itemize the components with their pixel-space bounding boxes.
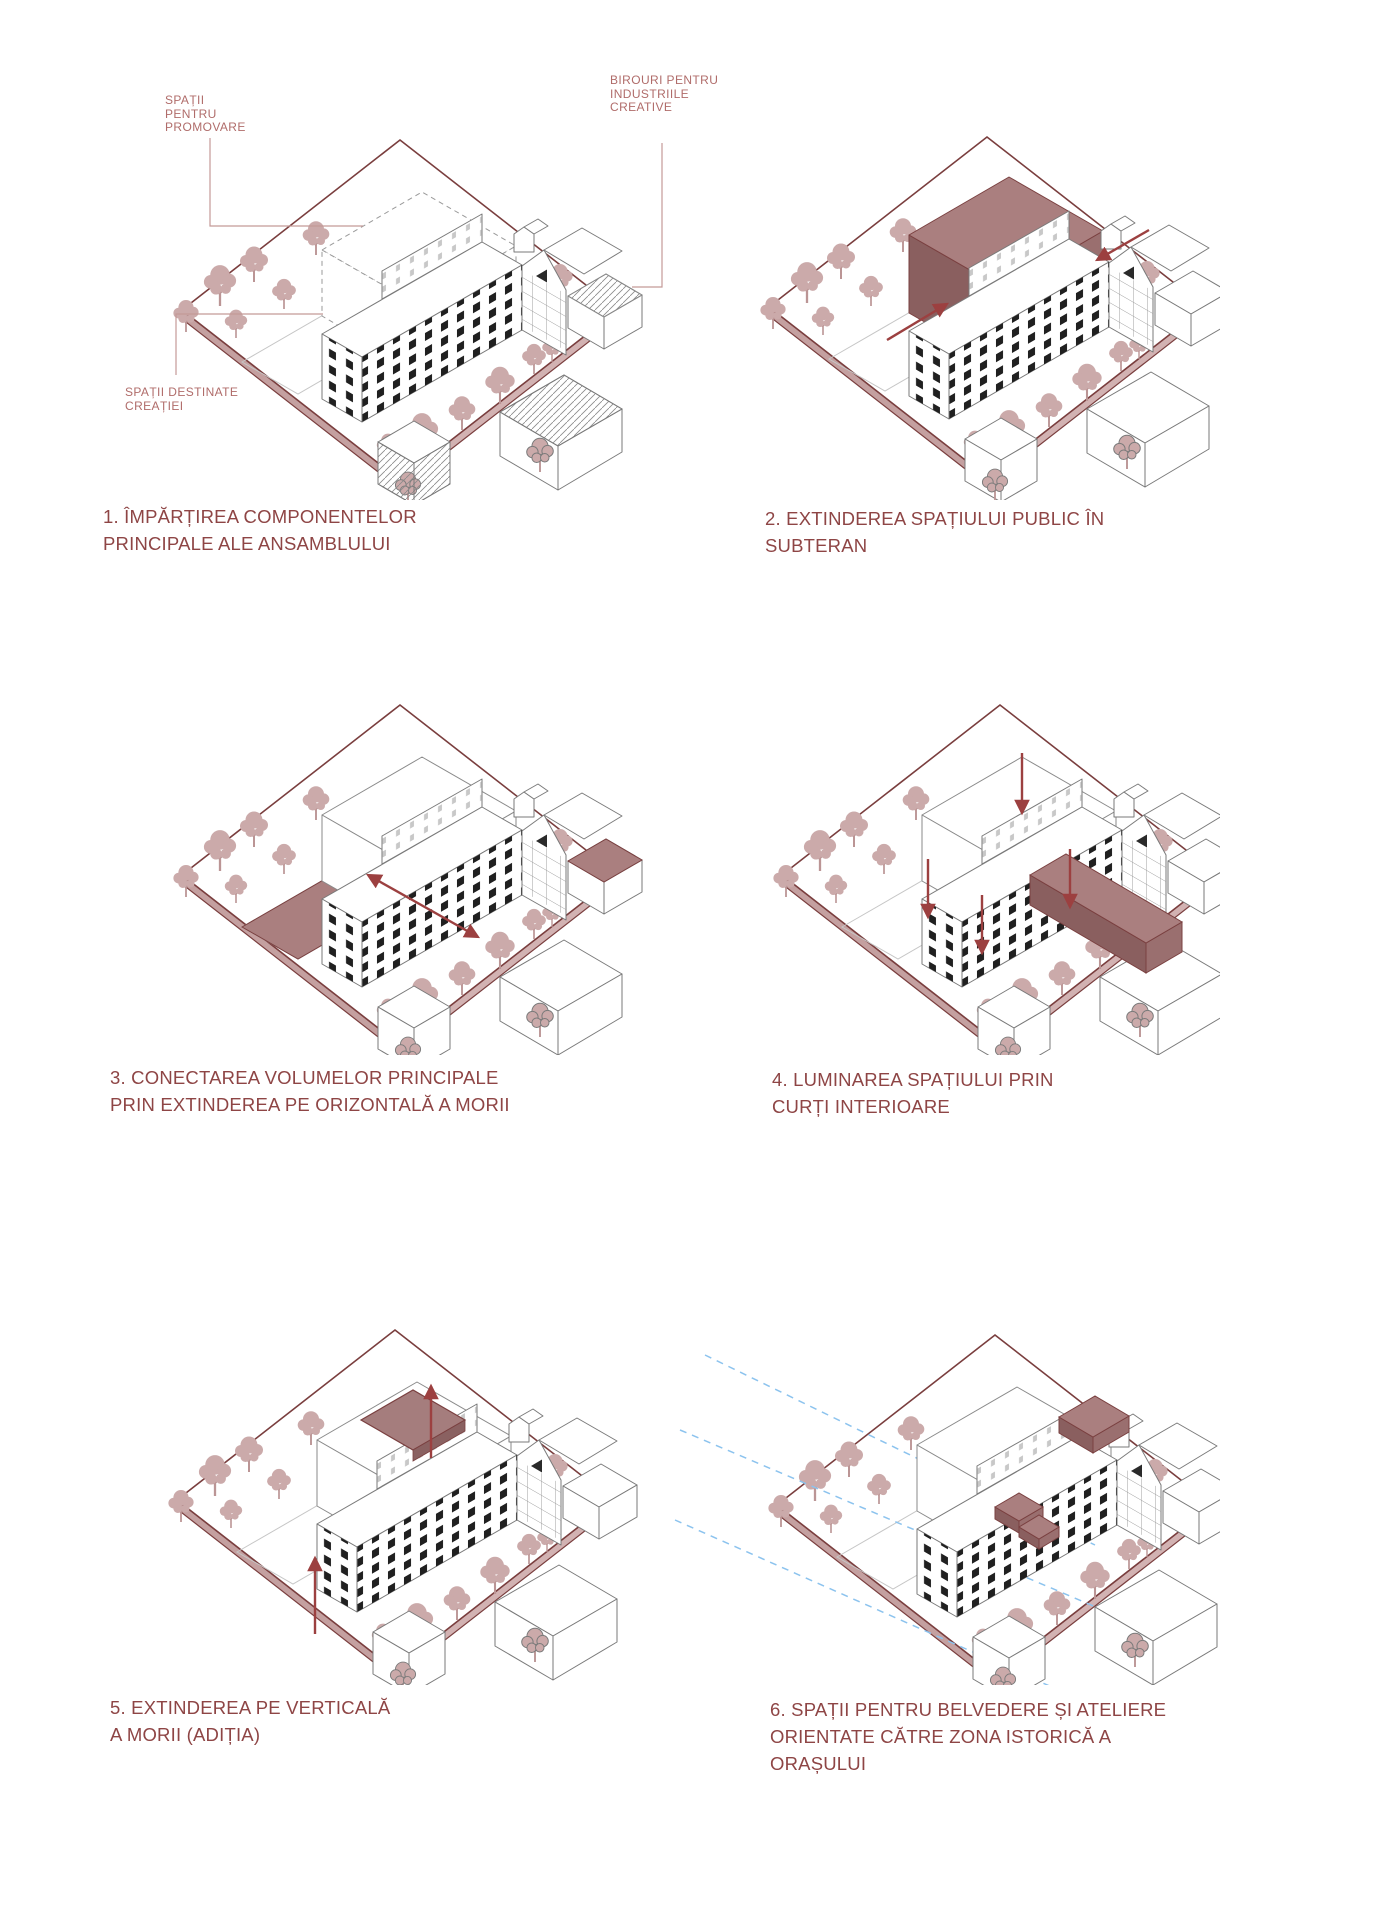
caption-line: PRINCIPALE ALE ANSAMBLULUI <box>103 530 417 557</box>
caption-line: ORAȘULUI <box>770 1750 1166 1777</box>
annotation-line: PENTRU <box>165 108 246 122</box>
annotation-spatii-creatie: SPAȚII DESTINATE CREAȚIEI <box>125 386 238 413</box>
annotation-line: SPAȚII <box>165 94 246 108</box>
caption-line: SUBTERAN <box>765 532 1104 559</box>
annotation-line: SPAȚII DESTINATE <box>125 386 238 400</box>
figure-3-caption: 3. CONECTAREA VOLUMELOR PRINCIPALE PRIN … <box>110 1064 510 1118</box>
figure-1-caption: 1. ÎMPĂRȚIREA COMPONENTELOR PRINCIPALE A… <box>103 503 417 557</box>
figure-3-scene <box>173 705 642 1055</box>
caption-line: 6. SPAȚII PENTRU BELVEDERE ȘI ATELIERE <box>770 1696 1166 1723</box>
figure-6-scene <box>675 1335 1220 1685</box>
caption-line: ORIENTATE CĂTRE ZONA ISTORICĂ A <box>770 1723 1166 1750</box>
caption-line: PRIN EXTINDEREA PE ORIZONTALĂ A MORII <box>110 1091 510 1118</box>
figure-4-scene <box>773 705 1220 1055</box>
caption-line: 3. CONECTAREA VOLUMELOR PRINCIPALE <box>110 1064 510 1091</box>
caption-line: 1. ÎMPĂRȚIREA COMPONENTELOR <box>103 503 417 530</box>
figure-6-illustration <box>640 1150 1220 1685</box>
caption-line: A MORII (ADIȚIA) <box>110 1721 390 1748</box>
figure-6-caption: 6. SPAȚII PENTRU BELVEDERE ȘI ATELIERE O… <box>770 1696 1166 1777</box>
figure-2-caption: 2. EXTINDEREA SPAȚIULUI PUBLIC ÎN SUBTER… <box>765 505 1104 559</box>
figure-2-illustration <box>640 30 1220 500</box>
caption-line: 5. EXTINDEREA PE VERTICALĂ <box>110 1694 390 1721</box>
caption-line: CURȚI INTERIOARE <box>772 1093 1054 1120</box>
figure-1-scene <box>173 140 642 500</box>
caption-line: 4. LUMINAREA SPAȚIULUI PRIN <box>772 1066 1054 1093</box>
figure-5-caption: 5. EXTINDEREA PE VERTICALĂ A MORII (ADIȚ… <box>110 1694 390 1748</box>
figure-3-illustration <box>85 560 665 1055</box>
diagram-sheet: SPAȚII PENTRU PROMOVARE BIROURI PENTRU I… <box>0 0 1394 1920</box>
annotation-line: PROMOVARE <box>165 121 246 135</box>
figure-2-scene <box>760 137 1220 500</box>
figure-5-scene <box>168 1330 637 1685</box>
figure-4-illustration <box>640 560 1220 1055</box>
annotation-line: CREAȚIEI <box>125 400 238 414</box>
figure-4-caption: 4. LUMINAREA SPAȚIULUI PRIN CURȚI INTERI… <box>772 1066 1054 1120</box>
annotation-spatii-promovare: SPAȚII PENTRU PROMOVARE <box>165 94 246 135</box>
caption-line: 2. EXTINDEREA SPAȚIULUI PUBLIC ÎN <box>765 505 1104 532</box>
figure-5-illustration <box>85 1150 665 1685</box>
